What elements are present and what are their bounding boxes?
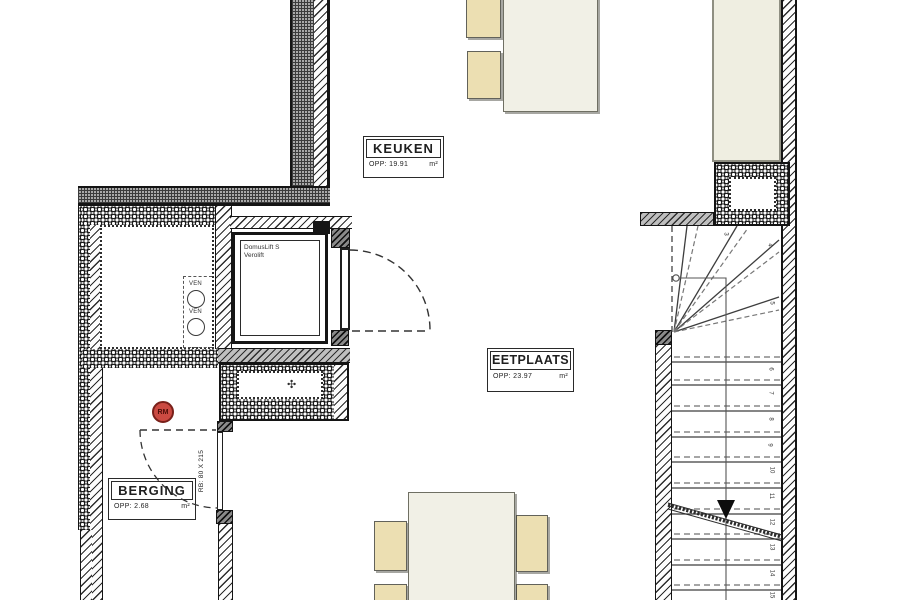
step-number: 5: [769, 301, 775, 304]
linework-overlay: [0, 0, 900, 600]
step-number: 14: [768, 570, 774, 577]
step-number: 13: [768, 544, 774, 551]
berging-door-swing: [140, 430, 218, 508]
step-number: 12: [768, 519, 774, 526]
floor-plan: VEN VEN DomusLift S Verolift ✣ RB: 80 X …: [0, 0, 900, 600]
stairs-straight-nosings: [674, 357, 781, 585]
step-number: 9: [767, 443, 773, 446]
step-number: 3: [723, 232, 729, 235]
lift-door-swing: [350, 250, 430, 331]
step-number: 6: [768, 367, 774, 370]
step-number: 10: [768, 467, 774, 474]
step-number: 4: [767, 243, 773, 246]
step-number: 11: [768, 493, 774, 499]
step-number: 7: [768, 391, 774, 394]
step-number: 8: [768, 417, 774, 420]
step-number: 15: [768, 592, 774, 599]
